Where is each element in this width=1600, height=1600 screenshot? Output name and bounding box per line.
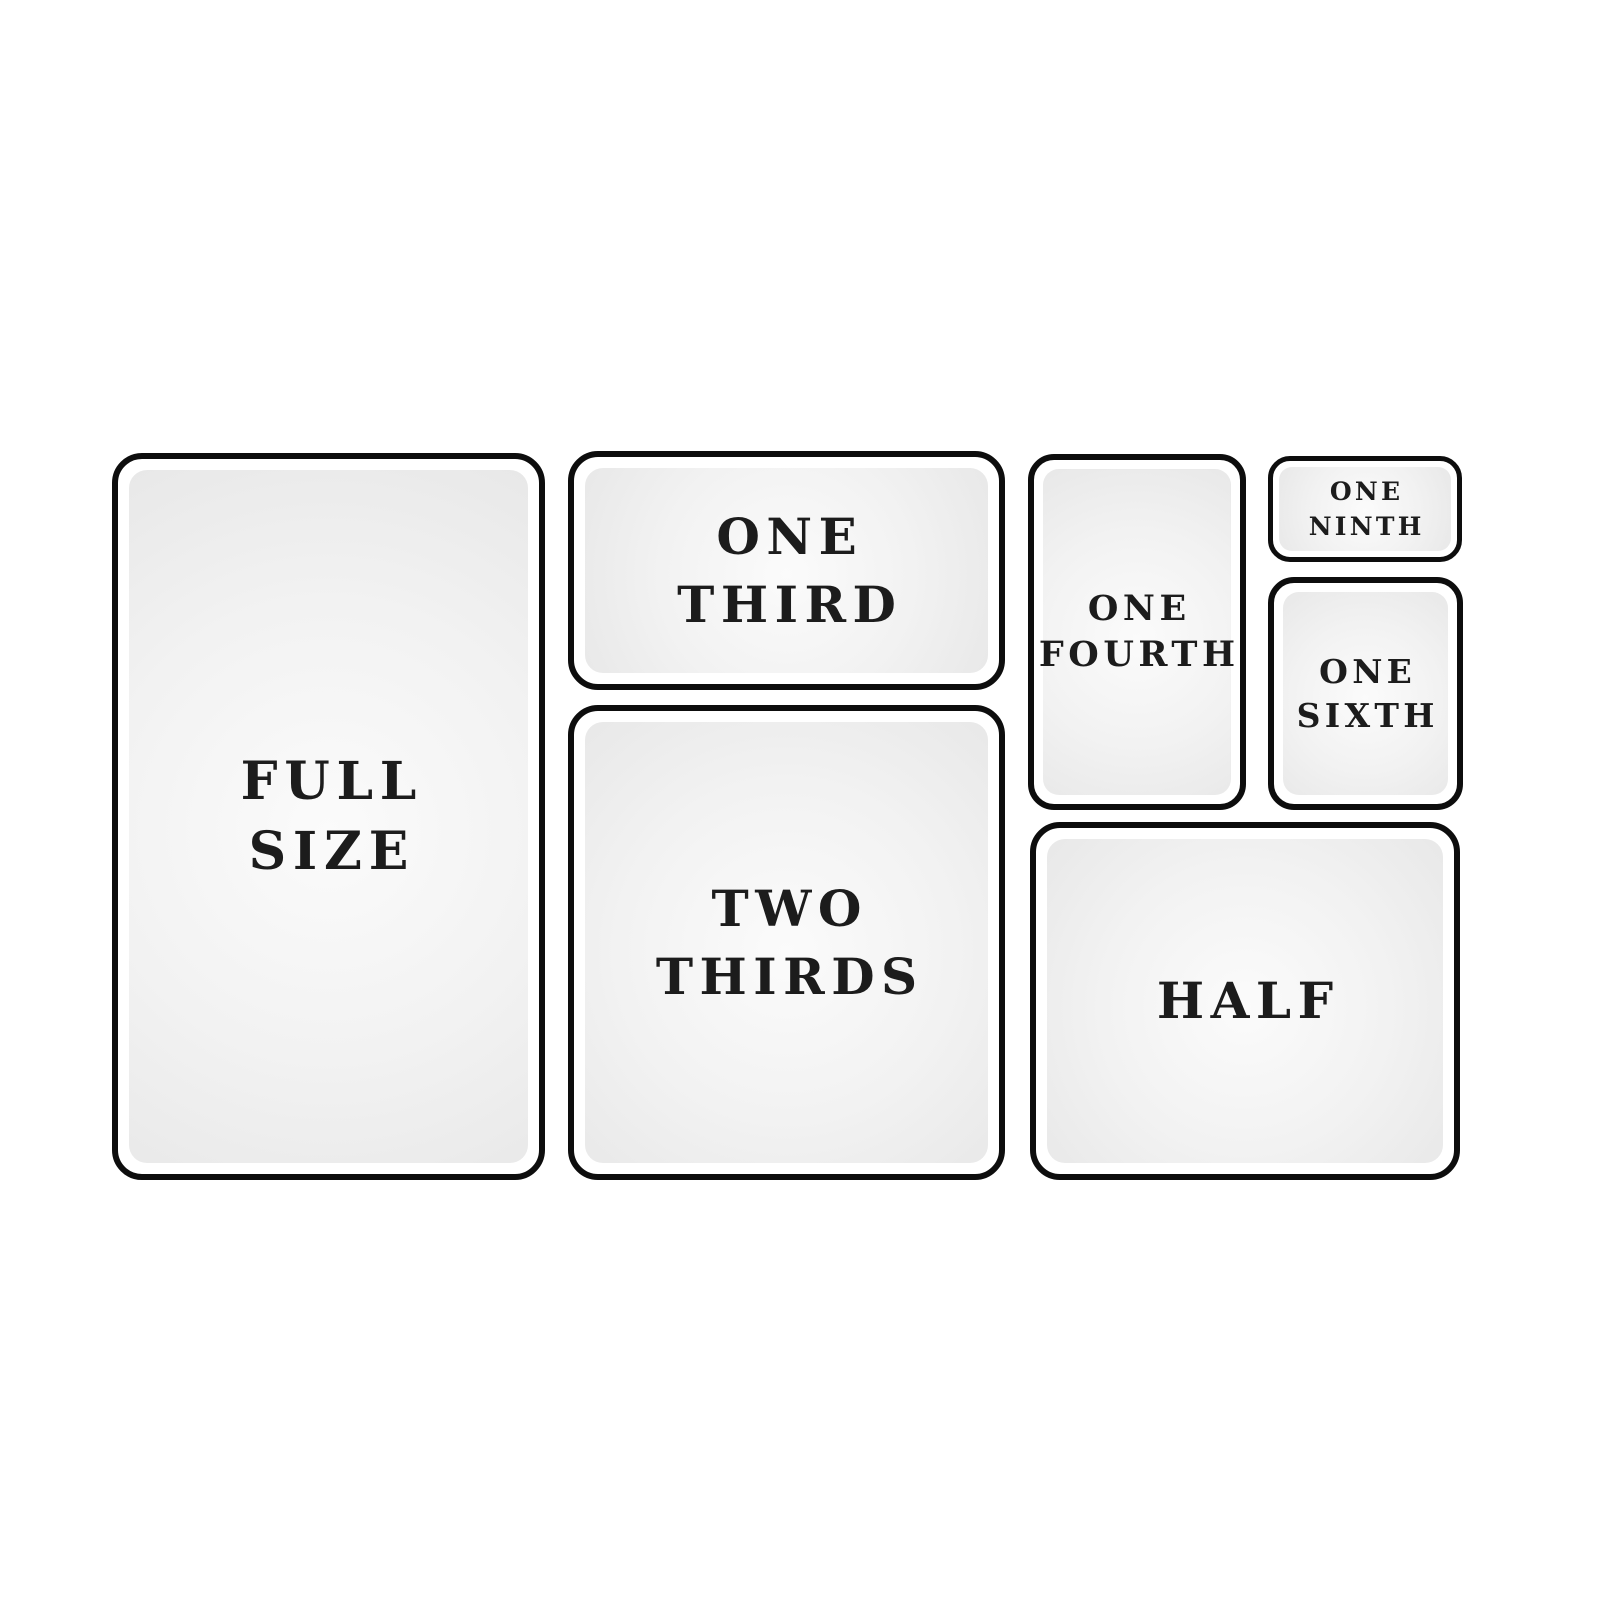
pan-one-fourth-label-line2: FOURTH (1034, 632, 1239, 678)
pan-half: HALF (1030, 822, 1460, 1180)
pan-two-thirds-face: TWO THIRDS (585, 722, 988, 1163)
pan-one-fourth: ONE FOURTH (1028, 454, 1246, 810)
pan-one-sixth-label-line2: SIXTH (1292, 694, 1438, 738)
pan-one-ninth-face: ONE NINTH (1279, 467, 1451, 551)
pan-full-size-label-line2: SIZE (242, 817, 415, 887)
pan-one-fourth-label-line1: ONE (1083, 586, 1190, 632)
pan-size-diagram: FULL SIZE ONE THIRD TWO THIRDS ONE FOURT… (0, 0, 1600, 1600)
pan-full-size-face: FULL SIZE (129, 470, 528, 1163)
pan-full-size: FULL SIZE (112, 453, 545, 1180)
pan-one-third-label-line2: THIRD (671, 571, 903, 639)
pan-one-sixth-face: ONE SIXTH (1283, 592, 1448, 795)
pan-one-ninth: ONE NINTH (1268, 456, 1462, 562)
pan-one-third: ONE THIRD (568, 451, 1005, 690)
pan-one-third-face: ONE THIRD (585, 468, 988, 673)
pan-one-ninth-label-line2: NINTH (1305, 509, 1424, 544)
pan-one-sixth: ONE SIXTH (1268, 577, 1463, 810)
pan-one-ninth-label-line1: ONE (1327, 474, 1404, 509)
pan-half-label-line1: HALF (1150, 967, 1339, 1035)
pan-two-thirds-label-line2: THIRDS (649, 943, 923, 1011)
pan-one-sixth-label-line1: ONE (1315, 650, 1416, 694)
pan-two-thirds-label-line1: TWO (705, 875, 868, 943)
pan-one-fourth-face: ONE FOURTH (1043, 469, 1231, 795)
pan-half-face: HALF (1047, 839, 1443, 1163)
pan-two-thirds: TWO THIRDS (568, 705, 1005, 1180)
pan-full-size-label-line1: FULL (234, 747, 423, 817)
pan-one-third-label-line1: ONE (710, 503, 863, 571)
